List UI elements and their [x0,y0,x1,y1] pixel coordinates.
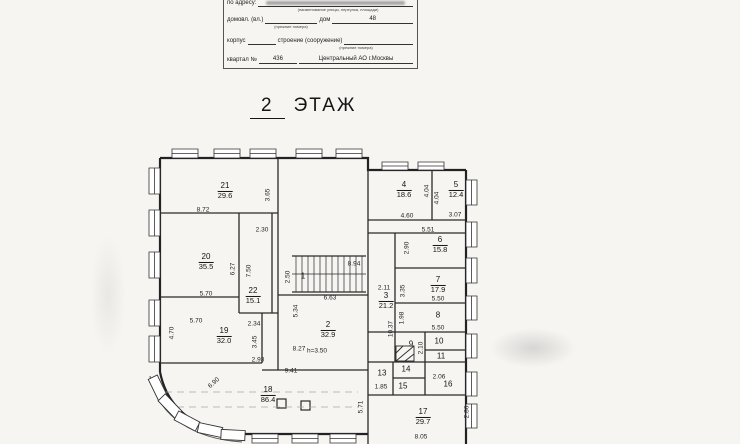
dashed-lines [165,392,358,407]
window-marks [149,149,477,443]
scanned-floor-plan-page: по адресу: (наименование улицы, переулка… [0,0,740,444]
columns [277,399,310,410]
outer-walls [160,158,466,444]
inner-walls [160,158,466,444]
shaft-hatch [396,346,414,361]
staircase [292,256,366,292]
floor-plan-drawing [0,0,740,444]
